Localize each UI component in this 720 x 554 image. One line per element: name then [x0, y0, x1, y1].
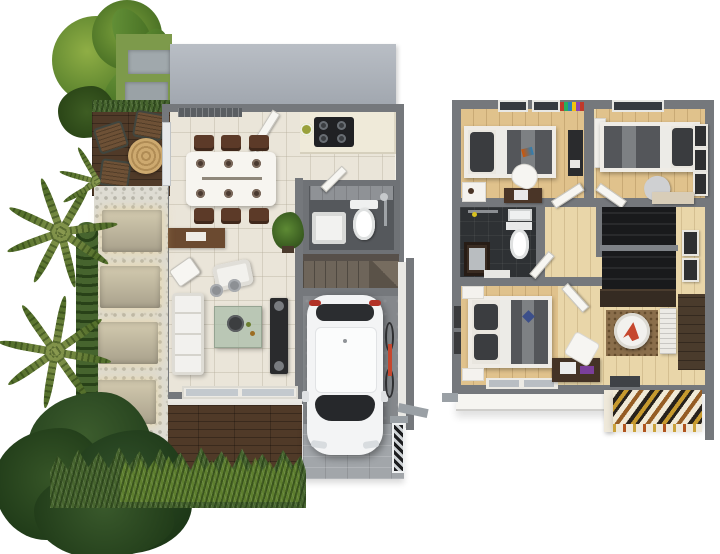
burner	[337, 121, 346, 130]
bedroom1-window	[532, 100, 560, 112]
sf-exterior-face	[456, 394, 612, 411]
path-paver	[102, 210, 162, 252]
dining-chair	[249, 135, 269, 151]
glass-pane	[524, 380, 554, 387]
plant-pot	[282, 246, 294, 253]
bed-pillow	[474, 304, 498, 330]
master-bed	[468, 296, 552, 368]
path-paver	[98, 322, 158, 364]
tray	[227, 315, 244, 332]
place-setting	[196, 189, 205, 198]
glass-pane	[489, 380, 519, 387]
burner	[319, 134, 328, 143]
book-row	[560, 102, 584, 111]
wall-frame	[693, 124, 708, 148]
roof-slab	[170, 44, 396, 110]
car-windshield	[315, 395, 375, 421]
bedroom2-window	[612, 100, 664, 112]
car	[307, 295, 383, 455]
gate-cap	[390, 416, 408, 423]
place-setting	[252, 159, 261, 168]
bed-sheet-band	[500, 300, 511, 364]
sf-wall-stub	[442, 393, 458, 402]
patio-door-glass	[162, 122, 171, 186]
potted-plant	[272, 212, 304, 250]
bench	[660, 308, 676, 354]
bedroom1-window	[498, 100, 528, 112]
bedroom1-bed	[464, 126, 556, 178]
coffee-cup	[468, 188, 474, 194]
nightstand	[462, 286, 484, 299]
stair-rail	[600, 245, 678, 251]
dining-chair	[194, 135, 214, 151]
canopy-edge	[613, 424, 702, 432]
dark-floor-strip	[678, 294, 705, 370]
dining-chair	[221, 208, 241, 224]
vanity-mirror	[469, 248, 485, 270]
patio-chair	[132, 110, 166, 142]
canopy-beam	[604, 390, 613, 432]
patio-chair	[98, 158, 131, 189]
bed-pillow	[672, 128, 694, 166]
stair-landing	[303, 254, 399, 261]
dining-chair	[221, 135, 241, 151]
car-antenna	[343, 339, 347, 343]
speaker	[274, 301, 284, 311]
nightstand	[462, 182, 486, 202]
bed-pillow	[474, 334, 498, 360]
car-rear-window	[316, 304, 374, 321]
sitting-cabinet	[600, 289, 676, 307]
wall-shelf	[454, 306, 461, 328]
wall-frame	[682, 230, 699, 256]
tv-cabinet-bedroom1	[568, 130, 583, 176]
glass-pane	[242, 389, 294, 396]
wall-basin	[508, 209, 532, 221]
bed-sheet-band	[660, 126, 671, 168]
floor-mat-dark	[610, 376, 640, 387]
bottle	[250, 331, 255, 336]
burner	[337, 134, 346, 143]
table-runner	[202, 177, 262, 180]
dining-chair	[249, 208, 269, 224]
ac-unit	[178, 108, 242, 117]
sf-wall-bedroom-divider	[584, 100, 594, 206]
bedroom2-desk	[652, 192, 694, 204]
tv-cabinet-item	[570, 160, 580, 168]
nightstand	[462, 368, 484, 381]
sideboard-tray	[186, 232, 206, 241]
pouf	[228, 279, 241, 292]
bathroom-sink	[312, 212, 346, 244]
bottle	[246, 322, 251, 327]
wall-frame	[693, 172, 708, 196]
bed-sheet-band	[496, 130, 507, 174]
place-setting	[224, 159, 233, 168]
patio-table	[128, 138, 164, 174]
burner	[319, 121, 328, 130]
path-paver	[100, 266, 160, 308]
sofa	[172, 293, 204, 375]
floor-plan-render	[0, 0, 720, 554]
shower-head	[380, 193, 388, 201]
car-mirror	[302, 391, 309, 402]
pouf	[210, 284, 223, 297]
car-headlight	[311, 440, 328, 449]
wall-frame	[682, 258, 699, 282]
place-setting	[196, 159, 205, 168]
bedroom2-bed	[600, 122, 700, 172]
louver-gate	[392, 423, 405, 473]
canopy-slats	[613, 390, 702, 426]
car-taillight	[369, 300, 381, 306]
car-taillight	[309, 300, 321, 306]
dining-chair	[194, 208, 214, 224]
bed-duvet-stripe	[622, 126, 636, 168]
stepping-stone	[128, 50, 170, 74]
glass-pane	[186, 389, 238, 396]
toilet-bowl-upper	[510, 229, 529, 259]
bed-pillow	[470, 132, 494, 172]
wall-shelf	[454, 332, 461, 354]
desk-book-purple	[580, 366, 594, 374]
car-roof	[315, 327, 377, 393]
place-setting	[252, 189, 261, 198]
toilet-bowl	[353, 208, 375, 240]
bicycle-frame	[388, 344, 392, 376]
bath-mat	[484, 270, 510, 278]
kitchen-bowl	[300, 123, 313, 136]
place-setting	[224, 189, 233, 198]
soap-dish	[472, 212, 477, 217]
laptop	[514, 190, 528, 200]
speaker	[274, 361, 284, 371]
wall-frame	[693, 148, 708, 172]
desk-laptop	[560, 362, 576, 374]
